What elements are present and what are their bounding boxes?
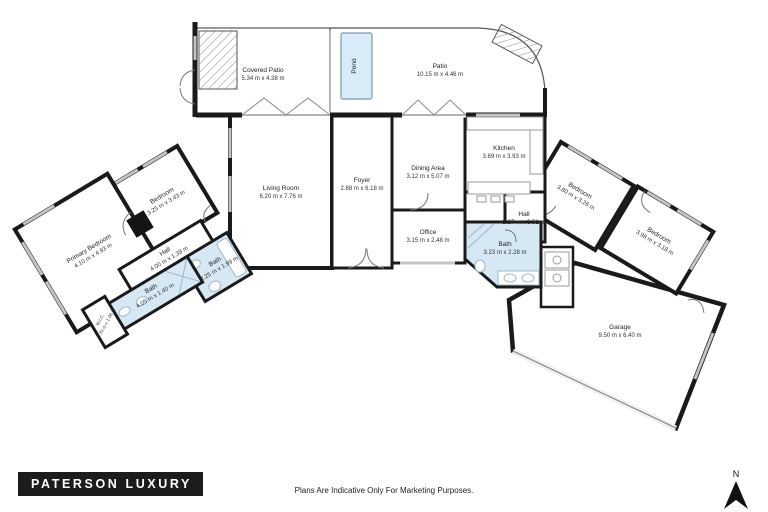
bath-east-toilet (475, 260, 485, 272)
patio-dims: 10.15 m x 4.46 m (417, 72, 463, 78)
patio-label: Patio (433, 63, 448, 70)
washer-drum-icon (553, 256, 561, 264)
kitchen-stool-2 (491, 196, 500, 202)
kitchen-label: Kitchen (493, 145, 515, 152)
disclaimer-text: Plans Are Indicative Only For Marketing … (0, 486, 768, 495)
kitchen-island (468, 182, 530, 194)
covered-patio-label: Covered Patio (242, 67, 284, 74)
dryer-drum-icon (553, 274, 561, 282)
kitchen-stool-1 (477, 196, 486, 202)
dining-area-label: Dining Area (411, 165, 445, 172)
bath-east-label: Bath (498, 241, 512, 248)
hall-east-label: Hall (518, 211, 530, 218)
hatched-steps-left (199, 31, 237, 89)
dining-area-dims: 3.12 m x 5.07 m (406, 174, 449, 180)
living-room-dims: 6.20 m x 7.76 m (259, 194, 302, 200)
garage-label: Garage (609, 324, 631, 331)
floorplan-drawing: Covered Patio 5.34 m x 4.38 m Patio 10.1… (0, 0, 768, 512)
living-room-label: Living Room (263, 185, 299, 192)
foyer-label: Foyer (354, 177, 371, 184)
bath-east-sink-2 (522, 274, 534, 282)
office-label: Office (420, 229, 437, 236)
kitchen-counter-top (467, 117, 543, 130)
hall-east-dims: 2.27 m x 3.51 m (502, 220, 545, 226)
floorplan-page: Covered Patio 5.34 m x 4.38 m Patio 10.1… (0, 0, 768, 512)
kitchen-stool-3 (505, 196, 514, 202)
kitchen-dims: 3.69 m x 3.93 m (482, 154, 525, 160)
compass-n-label: N (733, 469, 740, 479)
foyer-dims: 2.88 m x 6.18 m (340, 186, 383, 192)
garage-dims: 9.50 m x 6.40 m (598, 333, 641, 339)
bath-east-dims: 3.23 m x 2.28 m (483, 250, 526, 256)
kitchen-counter-right (530, 130, 543, 174)
office-room (392, 210, 465, 263)
covered-patio-dims: 5.34 m x 4.38 m (241, 76, 284, 82)
bath-east-sink-1 (504, 274, 516, 282)
pond-label: Pond (351, 58, 358, 74)
office-dims: 3.15 m x 2.48 m (406, 238, 449, 244)
